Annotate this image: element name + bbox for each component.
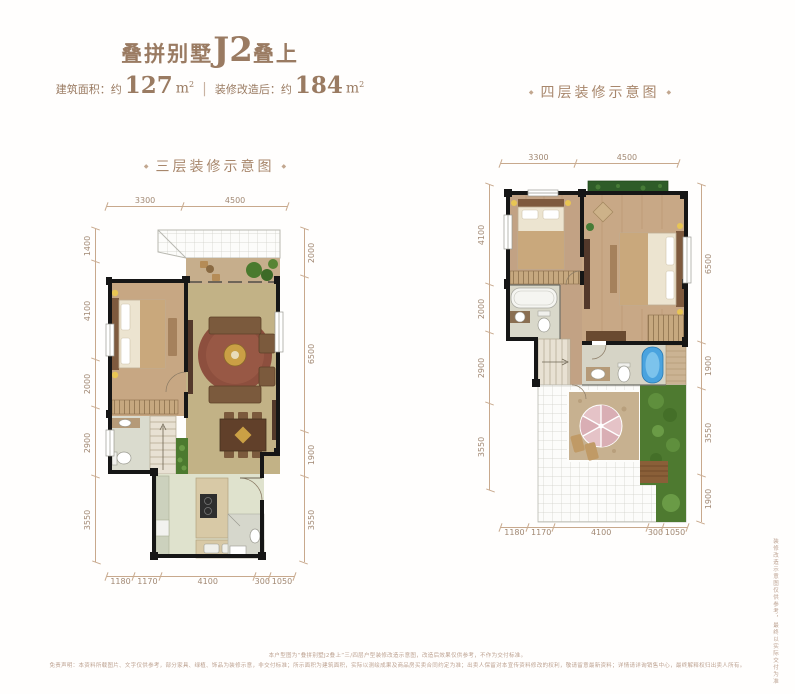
floor-plan-third-graphic — [104, 224, 296, 564]
dimension-segment: 3550 — [475, 404, 490, 490]
plan-third-dims-left: 14004100200029003550 — [81, 229, 96, 562]
dimension-segment: 1180 — [107, 576, 134, 591]
label-deco-icon: ◆ — [282, 163, 287, 170]
reno-value: 184 — [295, 76, 343, 96]
dimension-label: 3300 — [135, 197, 155, 205]
area-label: 建筑面积：约 — [56, 81, 122, 97]
dimension-label: 3550 — [308, 509, 316, 529]
dimension-segment: 2900 — [81, 408, 96, 477]
plan-third-dims-top: 33004500 — [107, 192, 287, 207]
dimension-label: 1400 — [84, 236, 92, 256]
dimension-segment: 1900 — [701, 343, 716, 389]
title-model: J2 — [213, 30, 253, 70]
area-unit: m2 — [176, 80, 194, 97]
dimension-label: 1900 — [705, 489, 713, 509]
dimension-segment: 6500 — [304, 277, 319, 432]
label-deco-icon: ◆ — [144, 163, 149, 170]
dimension-segment: 4100 — [475, 185, 490, 285]
plan-fourth-dims-bottom: 1180117041003001050 — [501, 527, 687, 542]
dimension-label: 3550 — [478, 437, 486, 457]
dimension-label: 2000 — [478, 299, 486, 319]
dimension-label: 1170 — [137, 578, 157, 586]
dimension-label: 2000 — [308, 243, 316, 263]
area-info: 建筑面积：约127m2 | 装修改造后：约184m2 — [55, 76, 365, 97]
dimension-label: 4100 — [591, 529, 611, 537]
dimension-label: 3550 — [705, 422, 713, 442]
dimension-label: 6500 — [705, 254, 713, 274]
dimension-segment: 2000 — [304, 229, 319, 277]
dimension-segment: 1900 — [701, 476, 716, 522]
plan-fourth-dims-right: 6500190035501900 — [701, 185, 716, 522]
dimension-segment: 1170 — [528, 527, 555, 542]
dimension-label: 4100 — [478, 225, 486, 245]
dimension-label: 3300 — [528, 154, 548, 162]
dimension-segment: 1180 — [501, 527, 528, 542]
dimension-segment: 1900 — [304, 432, 319, 477]
plan-third-label: ◆ 三层装修示意图 ◆ — [90, 156, 340, 176]
reno-label: 装修改造后：约 — [215, 81, 292, 97]
dimension-label: 2900 — [84, 432, 92, 452]
page-title: 叠拼别墅J2叠上 — [55, 30, 365, 74]
header-title-block: 叠拼别墅J2叠上 建筑面积：约127m2 | 装修改造后：约184m2 — [55, 30, 365, 97]
dimension-segment: 1170 — [134, 576, 161, 591]
floor-plan-fourth-graphic — [498, 179, 694, 524]
title-suffix: 叠上 — [253, 42, 299, 66]
dimension-segment: 2900 — [475, 333, 490, 403]
plan-fourth-label: ◆ 四层装修示意图 ◆ — [475, 82, 725, 102]
dimension-segment: 4500 — [183, 192, 287, 207]
label-deco-icon: ◆ — [667, 89, 672, 96]
plan-fourth-dims-left: 4100200029003550 — [475, 185, 490, 490]
dimension-segment: 4100 — [161, 576, 255, 591]
dimension-label: 1900 — [308, 444, 316, 464]
dimension-segment: 4100 — [554, 527, 647, 542]
plan-fourth-title: 四层装修示意图 — [541, 82, 660, 102]
dimension-label: 2900 — [478, 358, 486, 378]
dimension-segment: 1400 — [81, 229, 96, 262]
dimension-label: 1170 — [531, 529, 551, 537]
dimension-segment: 1050 — [663, 527, 687, 542]
dimension-segment: 2000 — [81, 360, 96, 408]
label-deco-icon: ◆ — [529, 89, 534, 96]
plan-third-title: 三层装修示意图 — [156, 156, 275, 176]
dimension-label: 1180 — [504, 529, 524, 537]
dimension-label: 1900 — [705, 356, 713, 376]
dimension-label: 4100 — [198, 578, 218, 586]
dimension-segment: 1050 — [270, 576, 294, 591]
brochure-page: 叠拼别墅J2叠上 建筑面积：约127m2 | 装修改造后：约184m2 ◆ 三层… — [0, 0, 795, 694]
plan-fourth-dims-top: 33004500 — [501, 149, 678, 164]
dimension-segment: 2000 — [475, 285, 490, 334]
dimension-label: 1050 — [665, 529, 685, 537]
dimension-label: 6500 — [308, 344, 316, 364]
dimension-segment: 6500 — [701, 185, 716, 343]
plan-third-dims-bottom: 1180117041003001050 — [107, 576, 294, 591]
dimension-segment: 4500 — [576, 149, 678, 164]
dimension-segment: 3550 — [701, 389, 716, 475]
dimension-segment: 3300 — [107, 192, 183, 207]
footer-disclaimer-line2: 免责声明：本资料所载图片、文字仅供参考，部分家具、绿植、饰品为装修示意，非交付标… — [25, 662, 770, 670]
footer-disclaimer-line1: 本户型图为“叠拼别墅J2叠上”三/四层户型装修改造示意图，改造后效果仅供参考，不… — [25, 652, 770, 660]
dimension-label: 1050 — [272, 578, 292, 586]
dimension-segment: 3300 — [501, 149, 576, 164]
dimension-label: 4500 — [617, 154, 637, 162]
subtitle-divider: | — [202, 81, 207, 97]
area-value: 127 — [125, 76, 173, 96]
side-disclaimer-note: 装修改造示意图仅供参考，最终以实际交付为准 — [771, 538, 779, 685]
reno-unit: m2 — [346, 80, 364, 97]
title-prefix: 叠拼别墅 — [121, 42, 213, 66]
dimension-label: 3550 — [84, 509, 92, 529]
dimension-segment: 3550 — [304, 477, 319, 562]
dimension-segment: 4100 — [81, 262, 96, 360]
dimension-segment: 3550 — [81, 477, 96, 562]
dimension-label: 4500 — [225, 197, 245, 205]
dimension-label: 4100 — [84, 301, 92, 321]
dimension-label: 2000 — [84, 374, 92, 394]
dimension-label: 1180 — [110, 578, 130, 586]
plan-third-dims-right: 2000650019003550 — [304, 229, 319, 562]
